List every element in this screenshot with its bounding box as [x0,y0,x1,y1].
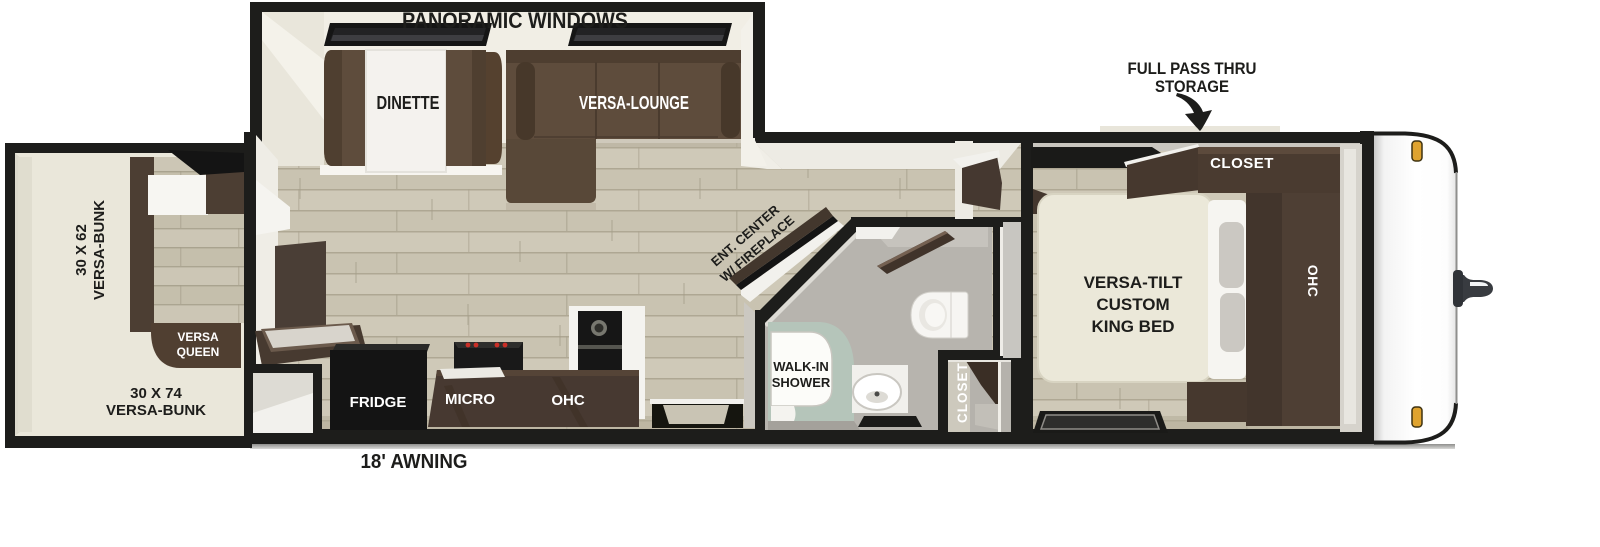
svg-text:STORAGE: STORAGE [1155,77,1229,96]
svg-text:CLOSET: CLOSET [1210,155,1274,172]
svg-text:VERSA-TILT: VERSA-TILT [1084,273,1183,292]
svg-text:WALK-IN: WALK-IN [773,359,829,374]
svg-text:DINETTE: DINETTE [377,93,440,113]
svg-text:30 X 74: 30 X 74 [130,385,182,402]
svg-text:FULL PASS THRU: FULL PASS THRU [1128,59,1257,78]
svg-text:FRIDGE: FRIDGE [350,394,407,411]
svg-text:CLOSET: CLOSET [955,362,970,423]
svg-text:VERSA-BUNK: VERSA-BUNK [91,200,108,300]
svg-text:PANORAMIC WINDOWS: PANORAMIC WINDOWS [402,8,628,33]
svg-text:OHC: OHC [551,392,585,409]
svg-text:OHC: OHC [1305,265,1321,298]
svg-text:30 X 62: 30 X 62 [73,224,90,276]
svg-text:CUSTOM: CUSTOM [1096,295,1169,314]
svg-text:KING BED: KING BED [1091,317,1174,336]
svg-text:SHOWER: SHOWER [772,375,831,390]
svg-text:QUEEN: QUEEN [177,345,220,359]
svg-text:VERSA: VERSA [177,330,219,344]
svg-text:VERSA-LOUNGE: VERSA-LOUNGE [579,93,689,113]
svg-text:18' AWNING: 18' AWNING [361,451,468,473]
svg-text:VERSA-BUNK: VERSA-BUNK [106,402,206,419]
svg-text:MICRO: MICRO [445,391,495,408]
